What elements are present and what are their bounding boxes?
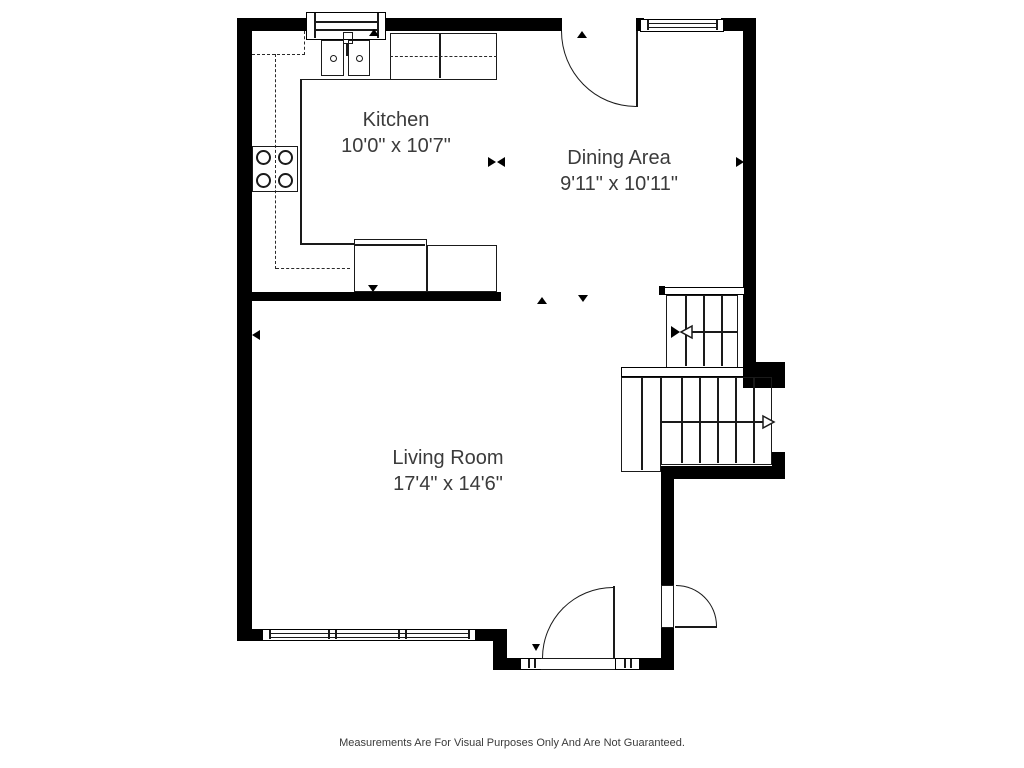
dimension-marker-up [537, 297, 547, 304]
window-divider [528, 659, 530, 668]
living-room-label: Living Room 17'4" x 14'6" [392, 445, 503, 497]
window-cap [647, 20, 649, 30]
window-cap [314, 13, 316, 38]
kitchen-dimensions: 10'0" x 10'7" [341, 133, 451, 159]
dimension-marker-right [736, 157, 744, 167]
dining-door-swing-arc [561, 31, 636, 107]
stair-up-arrow-head-icon [679, 325, 693, 339]
window-pane-line [270, 633, 469, 634]
sink-drain [330, 55, 337, 62]
counter-edge-bottom [300, 243, 355, 245]
sink-drain [356, 55, 363, 62]
entry-sidelight-right [615, 658, 640, 670]
window-cap [468, 630, 470, 639]
wall-entry-bottom-left [493, 658, 521, 670]
wall-bottom-right-seg [472, 629, 507, 641]
window-pane-line [648, 27, 716, 28]
wall-right [743, 18, 756, 368]
counter-edge-top [300, 79, 391, 81]
counter-edge-left [300, 79, 302, 244]
stair-up-arrow-line [690, 331, 738, 333]
dining-door-leaf [636, 31, 638, 107]
kitchen-label: Kitchen 10'0" x 10'7" [341, 107, 451, 159]
window-divider [328, 630, 330, 639]
window-cap [269, 630, 271, 639]
dimension-marker-bowtie-left [497, 157, 505, 167]
stove-burner [256, 173, 271, 188]
window-divider [405, 630, 407, 639]
wall-top-a [237, 18, 308, 31]
stair-tread-line [641, 378, 643, 470]
floor-plan: Kitchen 10'0" x 10'7" Dining Area 9'11" … [0, 0, 1024, 768]
upper-cabinet-dash [304, 31, 305, 55]
disclaimer-text: Measurements Are For Visual Purposes Onl… [339, 737, 685, 749]
stair-down-arrow-head-icon [762, 415, 776, 429]
dining-area-dimensions: 9'11" x 10'11" [560, 171, 678, 197]
stair-up-arrow-tick [671, 326, 680, 338]
window-divider [335, 630, 337, 639]
floor-plan-page: { "rooms": [ { "name": "Kitchen", "dimen… [0, 0, 1024, 768]
stove-burner [278, 150, 293, 165]
living-room-name: Living Room [392, 445, 503, 471]
dimension-marker-up [577, 31, 587, 38]
wall-kitchen-living-divider [237, 292, 501, 301]
closet-door-swing-arc [676, 585, 717, 626]
front-door-swing-arrow [532, 644, 540, 651]
window-divider [398, 630, 400, 639]
kitchen-name: Kitchen [341, 107, 451, 133]
window-divider [630, 659, 632, 668]
closet-door-leaf [675, 626, 717, 628]
dishwasher-line [355, 244, 425, 246]
wall-entry-bottom-right [640, 658, 674, 670]
closet-door-opening [661, 585, 674, 628]
window-pane-line [315, 21, 377, 23]
stove-burner [278, 173, 293, 188]
window-pane-line [315, 29, 377, 31]
stair-upper-cap [664, 287, 745, 295]
dishwasher [354, 239, 427, 292]
stove-burner [256, 150, 271, 165]
dimension-marker-down [578, 295, 588, 302]
front-door-opening [541, 658, 615, 670]
wall-entry-right-upper [661, 478, 674, 586]
dimension-marker-up [369, 29, 379, 36]
stove [252, 146, 298, 192]
window-pane-line [648, 23, 716, 24]
window-cap [716, 20, 718, 30]
living-room-dimensions: 17'4" x 14'6" [392, 471, 503, 497]
upper-cabinet-dash [390, 56, 497, 57]
sink-faucet-stem [346, 44, 349, 56]
upper-cabinet-dash [276, 268, 350, 269]
window-divider [624, 659, 626, 668]
wall-stair-bottom [661, 466, 785, 479]
dimension-marker-bowtie-right [488, 157, 496, 167]
wall-top-b [385, 18, 562, 31]
stair-down-arrow-line [661, 421, 765, 423]
front-door-leaf [613, 586, 615, 658]
sink-faucet [343, 32, 353, 44]
wall-left [237, 18, 252, 641]
stair-lower-cap [621, 367, 744, 377]
upper-cabinet-dash [252, 54, 305, 55]
dimension-marker-down [368, 285, 378, 292]
window-pane-line [270, 637, 469, 638]
stair-landing [621, 377, 661, 472]
window-divider [534, 659, 536, 668]
dining-area-label: Dining Area 9'11" x 10'11" [560, 145, 678, 197]
dining-window [640, 19, 724, 32]
counter-cabinet-bottom [427, 245, 497, 292]
front-door-swing-arc [542, 587, 613, 658]
living-room-window [262, 629, 476, 641]
entry-sidelight-left [520, 658, 542, 670]
dimension-marker-left [252, 330, 260, 340]
dining-area-name: Dining Area [560, 145, 678, 171]
